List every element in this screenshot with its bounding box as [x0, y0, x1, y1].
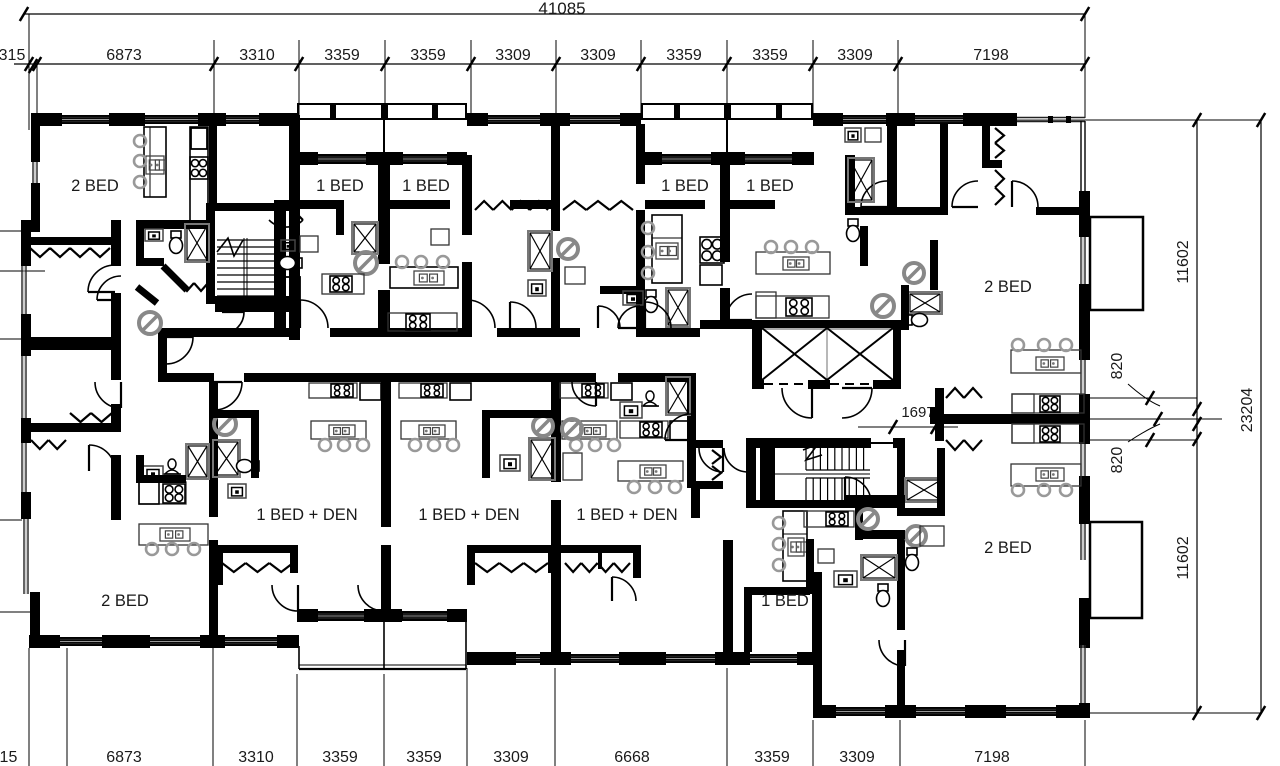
- svg-text:3309: 3309: [495, 47, 531, 64]
- svg-text:3309: 3309: [580, 47, 616, 64]
- svg-text:6873: 6873: [106, 47, 142, 64]
- svg-text:1 BED: 1 BED: [661, 177, 709, 195]
- svg-text:11602: 11602: [1175, 240, 1192, 283]
- svg-text:1 BED + DEN: 1 BED + DEN: [418, 506, 519, 524]
- svg-text:3359: 3359: [754, 749, 790, 766]
- svg-text:11602: 11602: [1175, 536, 1192, 579]
- svg-text:2 BED: 2 BED: [101, 592, 149, 610]
- svg-text:3309: 3309: [493, 749, 529, 766]
- svg-text:820: 820: [1109, 353, 1126, 380]
- svg-text:3359: 3359: [322, 749, 358, 766]
- svg-text:820: 820: [1109, 447, 1126, 474]
- svg-text:315: 315: [0, 47, 25, 64]
- svg-text:3359: 3359: [324, 47, 360, 64]
- svg-text:1 BED: 1 BED: [402, 177, 450, 195]
- svg-text:3359: 3359: [410, 47, 446, 64]
- svg-text:6873: 6873: [106, 749, 142, 766]
- svg-text:3359: 3359: [752, 47, 788, 64]
- svg-text:1 BED: 1 BED: [316, 177, 364, 195]
- svg-text:2 BED: 2 BED: [984, 539, 1032, 557]
- svg-text:1 BED + DEN: 1 BED + DEN: [256, 506, 357, 524]
- svg-text:1 BED: 1 BED: [761, 592, 809, 610]
- svg-text:7198: 7198: [973, 47, 1009, 64]
- svg-text:3309: 3309: [837, 47, 873, 64]
- svg-text:7198: 7198: [974, 749, 1010, 766]
- svg-text:23204: 23204: [1239, 388, 1256, 433]
- svg-text:2 BED: 2 BED: [71, 177, 119, 195]
- svg-text:6668: 6668: [614, 749, 650, 766]
- svg-text:41085: 41085: [538, 0, 585, 18]
- svg-text:3359: 3359: [666, 47, 702, 64]
- svg-text:3359: 3359: [406, 749, 442, 766]
- svg-text:315: 315: [0, 749, 17, 766]
- svg-text:1 BED + DEN: 1 BED + DEN: [576, 506, 677, 524]
- svg-text:3309: 3309: [839, 749, 875, 766]
- svg-text:1697: 1697: [901, 404, 934, 421]
- svg-text:2 BED: 2 BED: [984, 278, 1032, 296]
- svg-text:1 BED: 1 BED: [746, 177, 794, 195]
- svg-text:3310: 3310: [239, 47, 275, 64]
- svg-text:3310: 3310: [238, 749, 274, 766]
